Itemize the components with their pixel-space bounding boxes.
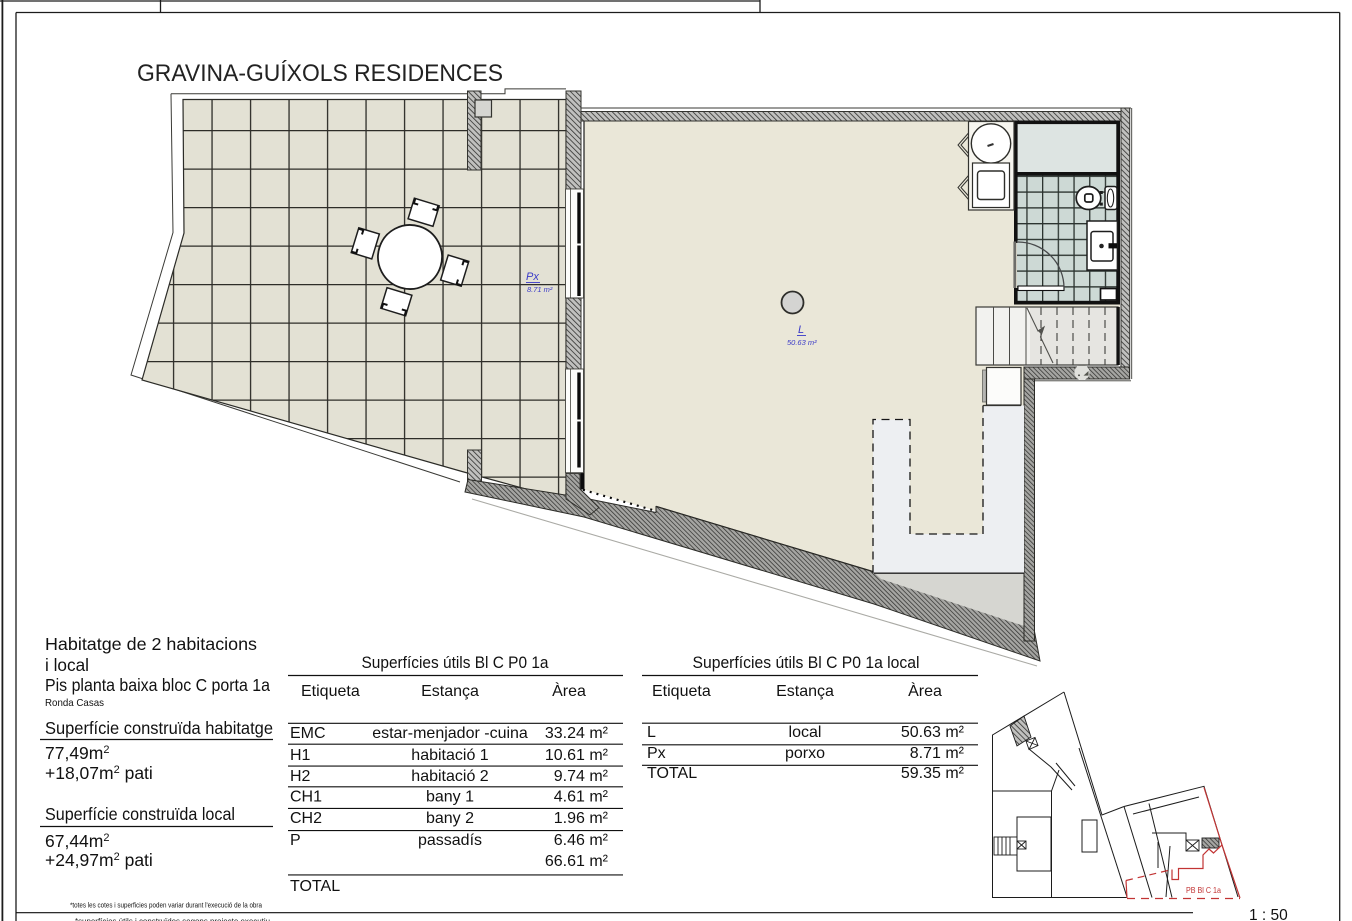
- svg-text:Àrea: Àrea: [908, 681, 942, 700]
- svg-text:*totes les cotes i superficies: *totes les cotes i superficies poden var…: [70, 901, 263, 910]
- svg-text:TOTAL: TOTAL: [290, 878, 340, 895]
- svg-text:77,49m2: 77,49m2: [45, 743, 110, 763]
- svg-text:66.61 m²: 66.61 m²: [545, 853, 609, 870]
- svg-text:PB Bl C 1a: PB Bl C 1a: [1186, 886, 1222, 895]
- svg-text:Estança: Estança: [421, 683, 479, 700]
- svg-text:1.96 m²: 1.96 m²: [554, 810, 609, 827]
- svg-text:Px: Px: [526, 271, 539, 283]
- svg-text:59.35 m²: 59.35 m²: [901, 765, 965, 782]
- svg-text:habitació 1: habitació 1: [411, 747, 488, 764]
- svg-text:bany 1: bany 1: [426, 789, 474, 806]
- svg-text:50.63 m²: 50.63 m²: [787, 338, 817, 347]
- svg-text:TOTAL: TOTAL: [647, 765, 697, 782]
- svg-text:Superfícies útils Bl C P0 1a l: Superfícies útils Bl C P0 1a local: [693, 654, 920, 672]
- svg-text:8.71 m²: 8.71 m²: [910, 745, 965, 762]
- svg-text:67,44m2: 67,44m2: [45, 831, 110, 851]
- svg-text:Etiqueta: Etiqueta: [652, 683, 711, 700]
- svg-text:33.24 m²: 33.24 m²: [545, 725, 609, 742]
- svg-text:+24,97m2 pati: +24,97m2 pati: [45, 850, 153, 870]
- svg-text:Superfície construïda local: Superfície construïda local: [45, 804, 235, 824]
- svg-text:bany 2: bany 2: [426, 810, 474, 827]
- svg-text:50.63 m²: 50.63 m²: [901, 724, 965, 741]
- svg-text:4.61 m²: 4.61 m²: [554, 789, 609, 806]
- svg-text:+18,07m2 pati: +18,07m2 pati: [45, 763, 153, 783]
- svg-text:Àrea: Àrea: [552, 681, 586, 700]
- svg-text:EMC: EMC: [290, 725, 326, 742]
- svg-text:GRAVINA-GUÍXOLS RESIDENCES: GRAVINA-GUÍXOLS RESIDENCES: [137, 60, 503, 87]
- svg-text:Px: Px: [647, 745, 666, 762]
- svg-text:8.71 m²: 8.71 m²: [527, 285, 553, 294]
- svg-text:P: P: [290, 832, 301, 849]
- svg-text:H1: H1: [290, 747, 311, 764]
- svg-text:6.46 m²: 6.46 m²: [554, 832, 609, 849]
- svg-text:habitació 2: habitació 2: [411, 768, 488, 785]
- svg-text:Superfície construïda habitatg: Superfície construïda habitatge: [45, 718, 273, 738]
- svg-text:Ronda Casas: Ronda Casas: [45, 697, 104, 709]
- svg-text:L: L: [647, 724, 656, 741]
- svg-text:Superfícies útils Bl C P0 1a: Superfícies útils Bl C P0 1a: [362, 654, 550, 672]
- svg-text:i local: i local: [45, 655, 89, 675]
- svg-text:Estança: Estança: [776, 683, 834, 700]
- svg-text:porxo: porxo: [785, 745, 825, 762]
- svg-text:Pis planta baixa bloc C porta: Pis planta baixa bloc C porta 1a: [45, 675, 270, 695]
- svg-text:1 : 50: 1 : 50: [1249, 907, 1288, 921]
- svg-text:9.74 m²: 9.74 m²: [554, 768, 609, 785]
- svg-text:*superfícies útils i construïd: *superfícies útils i construïdes segons …: [75, 917, 270, 921]
- svg-text:L: L: [798, 324, 804, 336]
- svg-text:estar-menjador -cuina: estar-menjador -cuina: [372, 725, 528, 742]
- svg-text:H2: H2: [290, 768, 311, 785]
- svg-text:CH1: CH1: [290, 789, 322, 806]
- svg-text:10.61 m²: 10.61 m²: [545, 747, 609, 764]
- svg-text:Habitatge de 2 habitacions: Habitatge de 2 habitacions: [45, 634, 257, 654]
- svg-text:Etiqueta: Etiqueta: [301, 683, 360, 700]
- svg-text:local: local: [789, 724, 822, 741]
- svg-text:CH2: CH2: [290, 810, 322, 827]
- svg-text:passadís: passadís: [418, 832, 482, 849]
